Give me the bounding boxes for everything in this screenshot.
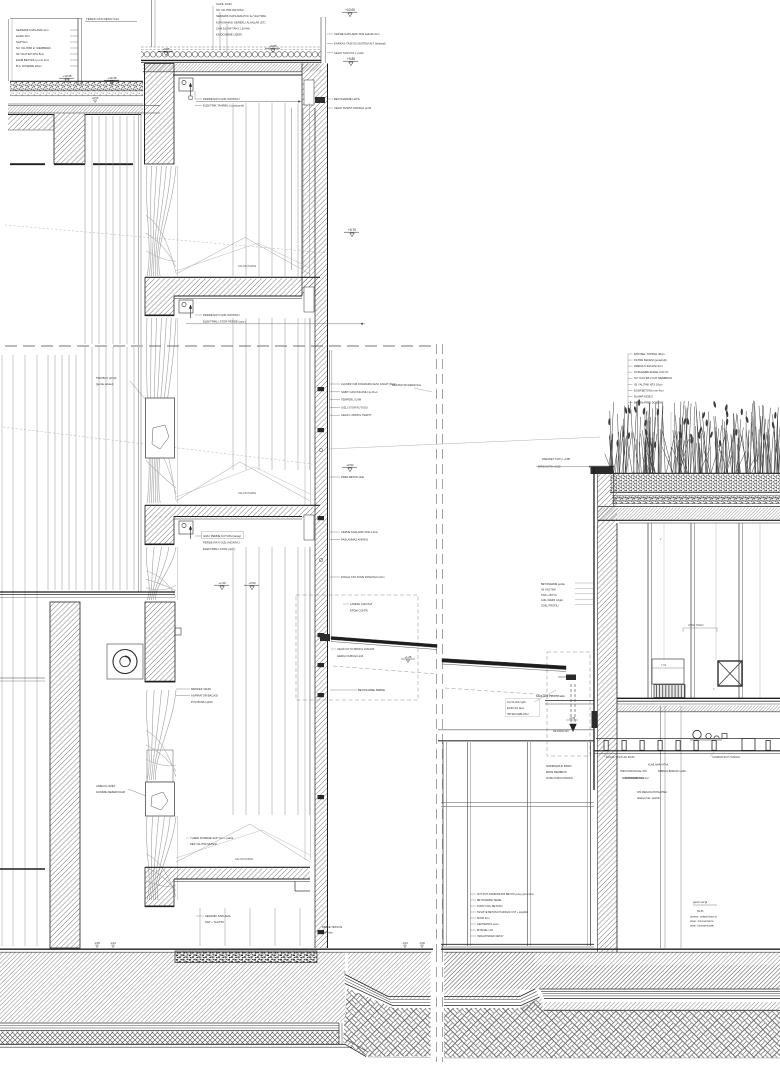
svg-text:EGIM BETONU p.min 2cm: EGIM BETONU p.min 2cm <box>16 58 50 62</box>
svg-text:HARC 3cm: HARC 3cm <box>16 34 31 38</box>
svg-text:-0.30: -0.30 <box>419 942 425 945</box>
svg-text:+9.85: +9.85 <box>163 47 170 51</box>
svg-text:MICIR 4cm: MICIR 4cm <box>477 917 490 920</box>
svg-text:DRENAJ LEVHASI 5cm: DRENAJ LEVHASI 5cm <box>634 364 663 368</box>
svg-text:SU YALITIMI ki: MEMBRAN: SU YALITIMI ki: MEMBRAN <box>16 46 51 50</box>
svg-text:+1.30: +1.30 <box>218 581 226 585</box>
svg-text:CELIK KUTU PROFIL 100x100: CELIK KUTU PROFIL 100x100 <box>337 647 375 651</box>
svg-text:+9.85: +9.85 <box>269 44 277 48</box>
svg-text:KORUYUCU BETONU: KORUYUCU BETONU <box>477 905 503 908</box>
svg-text:ELEKTRIKLI STOR PERDE (ops.): ELEKTRIKLI STOR PERDE (ops.) <box>203 320 246 324</box>
svg-text:ALUMINYUM DOGRAMA GIZLI KANAT: ALUMINYUM DOGRAMA GIZLI KANAT (RAL) <box>341 382 396 386</box>
svg-text:tavan : betonarme plak: tavan : betonarme plak <box>690 925 715 928</box>
svg-text:SU OLUGU gizli: SU OLUGU gizli <box>507 700 526 704</box>
svg-text:BETONARME HATIL: BETONARME HATIL <box>334 97 361 101</box>
svg-text:YUZER DOSEME SAP 7cm + parke: YUZER DOSEME SAP 7cm + parke <box>190 836 234 840</box>
svg-text:KUMLAMA YATAK: KUMLAMA YATAK <box>648 764 669 767</box>
svg-text:DILATASYON: DILATASYON <box>553 730 569 733</box>
svg-text:DOGAL TAS SOVE DONUSU k:2cm: DOGAL TAS SOVE DONUSU k:2cm <box>341 575 385 579</box>
svg-text:PASLANMAZ ANKRAJ: PASLANMAZ ANKRAJ <box>341 538 369 542</box>
svg-text:ELEKTRIKLI STOR (ops.): ELEKTRIKLI STOR (ops.) <box>203 547 235 551</box>
svg-text:DAMLALIK PROFILI alum.: DAMLALIK PROFILI alum. <box>536 695 566 698</box>
svg-text:EPDM CONTA: EPDM CONTA <box>350 609 368 613</box>
svg-text:+8.55: +8.55 <box>92 96 99 100</box>
svg-text:gecit sergi: gecit sergi <box>693 900 707 904</box>
svg-text:SALON PARKE: SALON PARKE <box>238 491 256 495</box>
svg-text:CELIK L PROFIL TESPIT: CELIK L PROFIL TESPIT <box>341 413 372 417</box>
svg-text:+3.50: +3.50 <box>248 581 256 585</box>
svg-text:GIZLI DERZ cizgisi: GIZLI DERZ cizgisi <box>541 598 563 602</box>
svg-text:LAMINE CAM 8+8: LAMINE CAM 8+8 <box>350 602 373 606</box>
svg-text:GEOTEKSTIL kece: GEOTEKSTIL kece <box>477 923 499 926</box>
svg-text:BETONARME perde: BETONARME perde <box>541 582 565 586</box>
svg-text:ISI YALITIMI XPS 8cm: ISI YALITIMI XPS 8cm <box>16 52 45 56</box>
svg-text:TEMPERLI CAM: TEMPERLI CAM <box>341 398 362 402</box>
svg-text:CAKIL 16/32: CAKIL 16/32 <box>216 2 232 6</box>
svg-text:+5.70: +5.70 <box>348 228 356 232</box>
svg-text:+9.85: +9.85 <box>347 57 355 61</box>
svg-text:duvar : brut betonarme: duvar : brut betonarme <box>690 920 714 923</box>
svg-text:SU YALITIM ORTUSU: SU YALITIM ORTUSU <box>216 8 244 12</box>
svg-text:YERALTINDAKI DETAY: YERALTINDAKI DETAY <box>477 935 504 938</box>
svg-text:GOMME REZERVUAR: GOMME REZERVUAR <box>96 790 125 794</box>
svg-text:CEPHE KAPLAMA TASI k:3cm: CEPHE KAPLAMA TASI k:3cm <box>341 530 379 534</box>
svg-text:-0.10: -0.10 <box>402 942 408 945</box>
svg-text:TAM BOY AYNA: TAM BOY AYNA <box>96 376 116 380</box>
svg-text:ELEKTRIK TAHRIKLI (opsiyonel): ELEKTRIK TAHRIKLI (opsiyonel) <box>203 104 244 108</box>
svg-text:SIKISTIRILMIS DOLGU: SIKISTIRILMIS DOLGU <box>622 777 649 780</box>
svg-text:SALON PARKE: SALON PARKE <box>238 264 256 268</box>
svg-text:PRES BETON plak: PRES BETON plak <box>341 475 365 479</box>
svg-text:-0.10: -0.10 <box>110 942 116 945</box>
svg-text:EGIM %2 dere: EGIM %2 dere <box>507 706 525 710</box>
svg-text:CELIK TESPIT ANKRAJ profil: CELIK TESPIT ANKRAJ profil <box>334 106 371 110</box>
svg-text:TJ10: TJ10 <box>661 665 667 667</box>
svg-text:YAGMUR SUYU KANALI: YAGMUR SUYU KANALI <box>712 756 740 759</box>
svg-text:CEPHE KAPLAMA TASI kalinlik 3c: CEPHE KAPLAMA TASI kalinlik 3cm <box>334 32 380 36</box>
svg-text:MENFEZ 30x30: MENFEZ 30x30 <box>191 687 211 691</box>
svg-text:KORUNMASI GEREKLI ALANLAR (ST): KORUNMASI GEREKLI ALANLAR (ST) <box>216 20 265 24</box>
svg-text:+10.05: +10.05 <box>345 8 355 12</box>
svg-text:KOKLENME ENGEL FOLYO: KOKLENME ENGEL FOLYO <box>634 370 668 374</box>
svg-text:SU YALITIMI 2 KAT MEMBRAN: SU YALITIMI 2 KAT MEMBRAN <box>634 376 672 380</box>
svg-text:SAP + YALITIM: SAP + YALITIM <box>205 920 224 924</box>
svg-text:CELIK TASIYICI L profil: CELIK TASIYICI L profil <box>334 51 364 55</box>
svg-text:ASPIRATOR BACASI: ASPIRATOR BACASI <box>191 694 218 698</box>
svg-text:ISI YALITIMI XPS 10cm: ISI YALITIMI XPS 10cm <box>634 382 663 386</box>
svg-text:No:05: No:05 <box>697 910 704 913</box>
svg-text:+10.35: +10.35 <box>108 76 117 80</box>
svg-text:SES YALITIM SILTESI: SES YALITIM SILTESI <box>190 842 217 846</box>
svg-text:PERDE RAYI GIZLI MONTAJ: PERDE RAYI GIZLI MONTAJ <box>203 541 240 545</box>
svg-text:SABIT CAM ISICAMLI 4+16+4: SABIT CAM ISICAMLI 4+16+4 <box>341 390 378 394</box>
svg-text:PERDE RAYI GIZLI MONTAJ: PERDE RAYI GIZLI MONTAJ <box>203 97 240 101</box>
svg-text:PARKE TESVIYE: PARKE TESVIYE <box>322 925 342 929</box>
svg-text:TERAS CATI DETAYI bkz.: TERAS CATI DETAYI bkz. <box>86 17 120 21</box>
svg-text:CAM ELYAF TAKV. LEVHA: CAM ELYAF TAKV. LEVHA <box>216 26 250 30</box>
svg-text:SAP 5cm: SAP 5cm <box>16 40 28 44</box>
svg-text:KARKAS TASIYICI SISTEM ALT (el: KARKAS TASIYICI SISTEM ALT (eloksal) <box>334 41 386 45</box>
svg-text:BITKISEL LOJ: BITKISEL LOJ <box>477 929 494 932</box>
svg-text:SERAMIK KAPLAMA PVC ile YALITI: SERAMIK KAPLAMA PVC ile YALITIMLI <box>216 14 266 18</box>
svg-text:B.A. DOSEME 20cm: B.A. DOSEME 20cm <box>16 64 42 68</box>
svg-text:direkleri bkz. elektrik: direkleri bkz. elektrik <box>637 797 660 800</box>
svg-text:+1.25: +1.25 <box>405 655 412 659</box>
svg-text:TRETUVAR DOGAL TAS: TRETUVAR DOGAL TAS <box>620 770 647 773</box>
svg-text:GIZLI PERDE KUTUSU detayi: GIZLI PERDE KUTUSU detayi <box>203 534 241 538</box>
svg-text:SERAMIK KAPLAMA 1cm: SERAMIK KAPLAMA 1cm <box>16 28 49 32</box>
svg-text:+10.35: +10.35 <box>63 74 72 78</box>
svg-text:BETONARME PERDE: BETONARME PERDE <box>358 688 385 692</box>
svg-text:SALON PARKE: SALON PARKE <box>235 857 253 861</box>
svg-text:+0.05: +0.05 <box>569 717 576 720</box>
svg-text:ASMA TAVAN: ASMA TAVAN <box>688 624 704 627</box>
svg-text:ANT ASIT ASINDIRILMIS BETON yu: ANT ASIT ASINDIRILMIS BETON yuzey gorunu… <box>477 893 534 896</box>
svg-text:DRENAJ BORUSU q100: DRENAJ BORUSU q100 <box>658 770 686 773</box>
svg-text:SOKL PROFILI: SOKL PROFILI <box>541 604 559 608</box>
svg-text:+0.52: +0.52 <box>346 463 354 467</box>
svg-text:-0.05: -0.05 <box>94 942 100 945</box>
svg-text:SIZDIRMAZLIK BANDI: SIZDIRMAZLIK BANDI <box>546 765 572 768</box>
svg-text:EGIM BETONU min 4cm: EGIM BETONU min 4cm <box>634 388 664 392</box>
svg-text:SERAMIK KAPLAMA: SERAMIK KAPLAMA <box>205 914 231 918</box>
svg-text:BITKISEL TOPRAK 30cm: BITKISEL TOPRAK 30cm <box>634 352 665 356</box>
svg-text:PVC BORU q100: PVC BORU q100 <box>191 700 213 704</box>
svg-text:SIVA + BOYA: SIVA + BOYA <box>541 593 557 597</box>
svg-text:DILATASYON DERZI 5cm: DILATASYON DERZI 5cm <box>392 384 421 387</box>
svg-text:ISITMA KABLOSU: ISITMA KABLOSU <box>507 712 529 716</box>
svg-text:FILTRE KECESI (jeotekstil): FILTRE KECESI (jeotekstil) <box>634 358 667 362</box>
svg-text:BUHAR KESICI: BUHAR KESICI <box>634 394 653 398</box>
svg-text:EPDM MEMBRAN: EPDM MEMBRAN <box>546 771 567 774</box>
svg-text:PERDE RAYI GIZLI MONTAJ: PERDE RAYI GIZLI MONTAJ <box>203 313 240 317</box>
svg-text:GERGI CUBUGU q16: GERGI CUBUGU q16 <box>337 654 364 658</box>
svg-text:ASMA KLOZET: ASMA KLOZET <box>96 784 116 788</box>
svg-text:PARAPET KOTU +0.85: PARAPET KOTU +0.85 <box>542 457 571 461</box>
svg-text:DIS MEKAN AYDINLATMA: DIS MEKAN AYDINLATMA <box>637 791 667 794</box>
svg-text:DOGAL TAS PLAK 60x30: DOGAL TAS PLAK 60x30 <box>606 756 635 759</box>
svg-text:ISI YALITIMI: ISI YALITIMI <box>541 587 556 591</box>
svg-text:BETONARME TEMEL: BETONARME TEMEL <box>477 899 502 902</box>
svg-text:KOSE DONUS PROFILI: KOSE DONUS PROFILI <box>546 777 573 780</box>
svg-text:GIZLI STOR KUTUSU: GIZLI STOR KUTUSU <box>341 405 368 409</box>
svg-text:TESVIYE BETONU HAZIRLIK UST +: TESVIYE BETONU HAZIRLIK UST + kaydirici <box>477 911 529 914</box>
svg-text:(perde arkasi): (perde arkasi) <box>96 382 113 386</box>
svg-text:dosema : antiasit beton pl.: dosema : antiasit beton pl. <box>690 916 718 919</box>
